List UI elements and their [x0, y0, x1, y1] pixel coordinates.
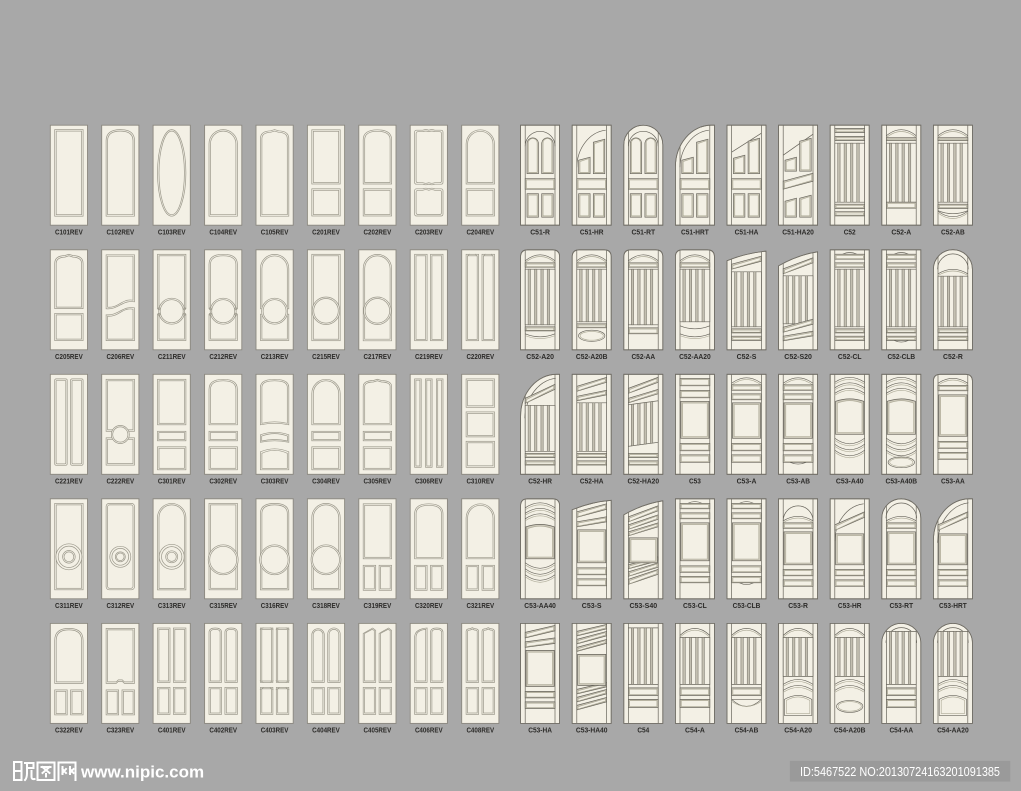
svg-text:C302REV: C302REV — [209, 477, 237, 486]
svg-text:C54-A20B: C54-A20B — [834, 726, 866, 735]
svg-text:C321REV: C321REV — [466, 601, 494, 610]
svg-text:C54-AA20: C54-AA20 — [937, 726, 969, 735]
svg-text:C54-AA: C54-AA — [889, 726, 913, 735]
svg-text:C221REV: C221REV — [55, 477, 83, 486]
svg-text:C54-A: C54-A — [685, 726, 705, 735]
svg-text:C101REV: C101REV — [55, 228, 83, 237]
svg-text:C51-R: C51-R — [530, 228, 550, 237]
svg-text:C320REV: C320REV — [415, 601, 443, 610]
svg-text:C204REV: C204REV — [466, 228, 494, 237]
svg-text:C403REV: C403REV — [261, 726, 289, 735]
svg-text:C402REV: C402REV — [209, 726, 237, 735]
svg-text:C310REV: C310REV — [466, 477, 494, 486]
svg-text:C52-A20B: C52-A20B — [576, 352, 608, 361]
svg-text:C52-S20: C52-S20 — [784, 352, 812, 361]
svg-text:C52-HA: C52-HA — [580, 477, 604, 486]
svg-text:C51-HA: C51-HA — [735, 228, 759, 237]
svg-text:C52-AA20: C52-AA20 — [679, 352, 711, 361]
svg-text:C215REV: C215REV — [312, 352, 340, 361]
svg-text:C53-AB: C53-AB — [786, 477, 810, 486]
svg-text:C316REV: C316REV — [261, 601, 289, 610]
svg-text:C52: C52 — [844, 228, 856, 237]
svg-text:C53-A40: C53-A40 — [836, 477, 864, 486]
svg-text:C53-A: C53-A — [737, 477, 757, 486]
svg-text:C306REV: C306REV — [415, 477, 443, 486]
svg-text:C53-AA40: C53-AA40 — [524, 601, 556, 610]
svg-text:C54: C54 — [637, 726, 650, 735]
svg-text:C51-HR: C51-HR — [580, 228, 604, 237]
svg-text:C205REV: C205REV — [55, 352, 83, 361]
svg-text:C52-AA: C52-AA — [631, 352, 655, 361]
svg-text:C405REV: C405REV — [364, 726, 392, 735]
svg-text:C203REV: C203REV — [415, 228, 443, 237]
svg-text:C301REV: C301REV — [158, 477, 186, 486]
svg-text:C202REV: C202REV — [364, 228, 392, 237]
svg-text:C315REV: C315REV — [209, 601, 237, 610]
svg-text:C53-RT: C53-RT — [889, 601, 913, 610]
svg-text:C53-CL: C53-CL — [683, 601, 707, 610]
svg-text:C222REV: C222REV — [106, 477, 134, 486]
svg-text:C52-S: C52-S — [737, 352, 757, 361]
svg-text:C53-HRT: C53-HRT — [939, 601, 967, 610]
svg-text:C217REV: C217REV — [364, 352, 392, 361]
svg-text:C52-CLB: C52-CLB — [887, 352, 915, 361]
svg-text:C52-A: C52-A — [891, 228, 911, 237]
svg-text:C53-S: C53-S — [582, 601, 602, 610]
svg-text:C213REV: C213REV — [261, 352, 289, 361]
svg-text:C406REV: C406REV — [415, 726, 443, 735]
svg-text:C53-AA: C53-AA — [941, 477, 965, 486]
svg-text:C102REV: C102REV — [106, 228, 134, 237]
svg-text:C305REV: C305REV — [364, 477, 392, 486]
svg-text:C51-RT: C51-RT — [631, 228, 655, 237]
svg-text:C53-HR: C53-HR — [838, 601, 862, 610]
svg-text:C212REV: C212REV — [209, 352, 237, 361]
svg-text:C220REV: C220REV — [466, 352, 494, 361]
svg-text:C211REV: C211REV — [158, 352, 186, 361]
svg-text:C54-A20: C54-A20 — [784, 726, 812, 735]
svg-text:C53-HA40: C53-HA40 — [576, 726, 608, 735]
svg-text:C51-HRT: C51-HRT — [681, 228, 709, 237]
svg-text:C53-A40B: C53-A40B — [886, 477, 918, 486]
svg-text:C313REV: C313REV — [158, 601, 186, 610]
svg-text:C52-A20: C52-A20 — [526, 352, 554, 361]
svg-text:C52-CL: C52-CL — [838, 352, 862, 361]
svg-text:C404REV: C404REV — [312, 726, 340, 735]
svg-text:C104REV: C104REV — [209, 228, 237, 237]
svg-text:C303REV: C303REV — [261, 477, 289, 486]
svg-text:C51-HA20: C51-HA20 — [782, 228, 814, 237]
svg-text:C323REV: C323REV — [106, 726, 134, 735]
svg-text:www.nipic.com: www.nipic.com — [80, 763, 204, 782]
svg-text:C401REV: C401REV — [158, 726, 186, 735]
svg-text:C219REV: C219REV — [415, 352, 443, 361]
svg-text:C322REV: C322REV — [55, 726, 83, 735]
svg-text:C52-HR: C52-HR — [528, 477, 552, 486]
svg-text:C53-HA: C53-HA — [528, 726, 552, 735]
svg-text:C103REV: C103REV — [158, 228, 186, 237]
svg-text:C53-R: C53-R — [788, 601, 808, 610]
svg-text:C206REV: C206REV — [106, 352, 134, 361]
svg-text:C201REV: C201REV — [312, 228, 340, 237]
svg-text:C311REV: C311REV — [55, 601, 83, 610]
svg-text:C304REV: C304REV — [312, 477, 340, 486]
svg-text:C53: C53 — [689, 477, 701, 486]
svg-text:C319REV: C319REV — [364, 601, 392, 610]
svg-text:C53-CLB: C53-CLB — [733, 601, 761, 610]
svg-text:C52-AB: C52-AB — [941, 228, 965, 237]
svg-text:C52-R: C52-R — [943, 352, 963, 361]
svg-text:C53-S40: C53-S40 — [629, 601, 657, 610]
svg-text:C312REV: C312REV — [106, 601, 134, 610]
svg-text:C318REV: C318REV — [312, 601, 340, 610]
svg-text:ID:5467522 NO:2013072416320109: ID:5467522 NO:20130724163201091385 — [800, 764, 1000, 779]
svg-text:C408REV: C408REV — [466, 726, 494, 735]
svg-text:C105REV: C105REV — [261, 228, 289, 237]
svg-text:C54-AB: C54-AB — [735, 726, 759, 735]
svg-text:C52-HA20: C52-HA20 — [628, 477, 660, 486]
